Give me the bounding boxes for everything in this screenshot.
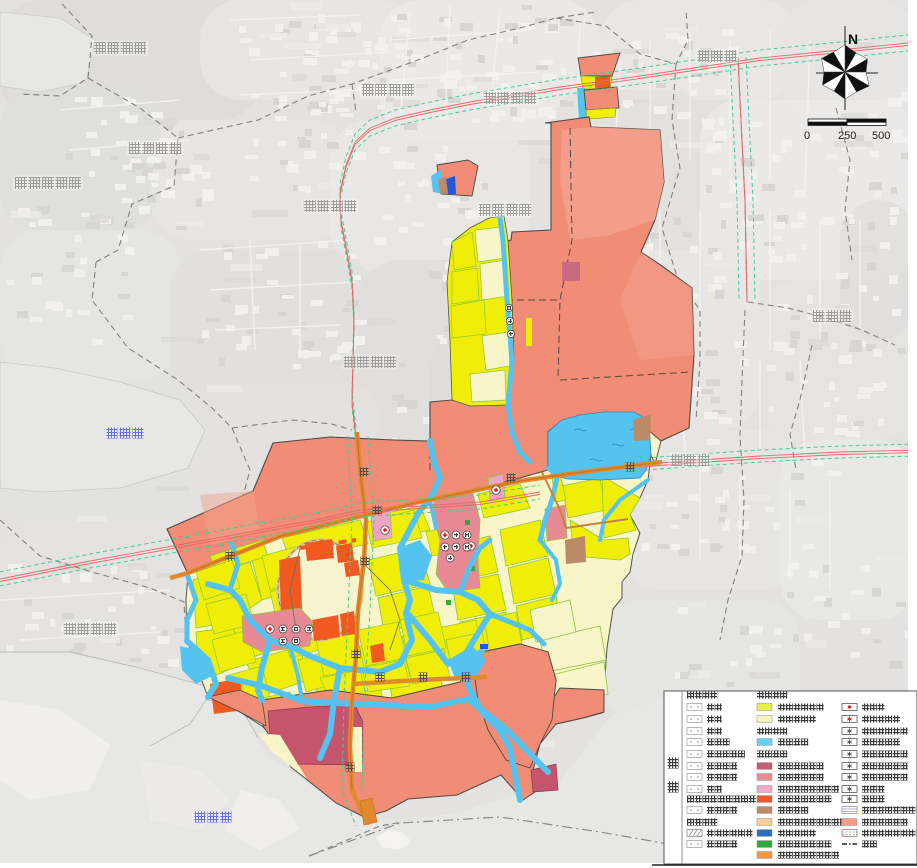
svg-text:0: 0 (804, 130, 810, 142)
svg-text:N: N (848, 31, 858, 47)
svg-text:250: 250 (838, 130, 856, 142)
svg-text:500: 500 (872, 130, 890, 142)
